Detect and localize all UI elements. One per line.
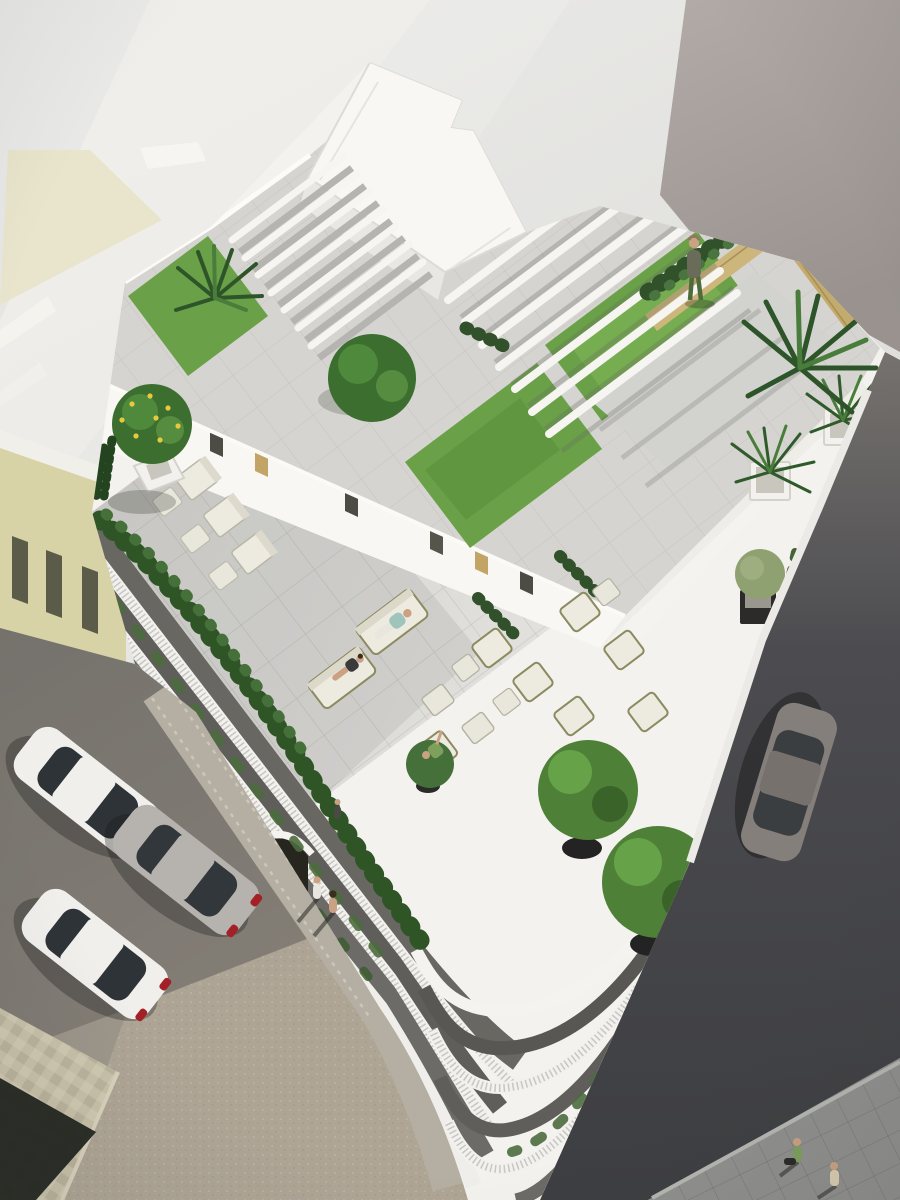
architectural-rendering [0, 0, 900, 1200]
vignette [0, 0, 900, 1200]
rendering-canvas [0, 0, 900, 1200]
